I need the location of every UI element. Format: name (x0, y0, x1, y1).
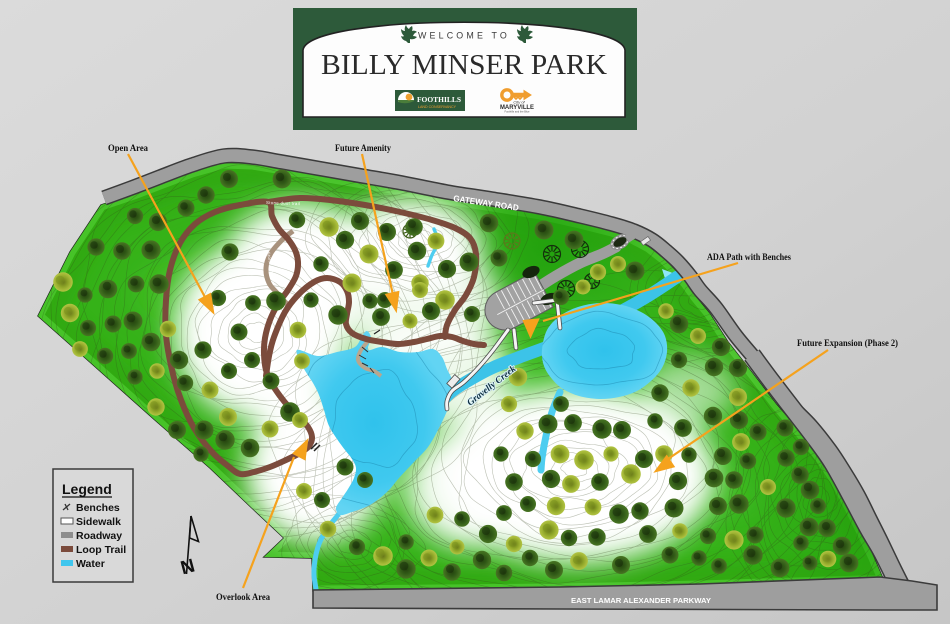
svg-text:Future Expansion (Phase 2): Future Expansion (Phase 2) (797, 338, 898, 349)
svg-text:Benches: Benches (76, 502, 120, 514)
svg-text:Sidewalk: Sidewalk (76, 516, 121, 528)
svg-text:EAST LAMAR ALEXANDER PARKWAY: EAST LAMAR ALEXANDER PARKWAY (571, 596, 711, 605)
svg-text:Open Area: Open Area (108, 144, 148, 154)
svg-text:Roadway: Roadway (76, 530, 122, 542)
svg-text:WELCOME TO: WELCOME TO (418, 31, 510, 41)
svg-text:Loop Trail: Loop Trail (76, 544, 126, 556)
svg-text:Foothills and the Blue: Foothills and the Blue (505, 110, 531, 114)
svg-text:FOOTHILLS: FOOTHILLS (417, 95, 461, 104)
svg-text:Legend: Legend (62, 481, 112, 497)
svg-text:Overlook Area: Overlook Area (216, 593, 270, 603)
svg-text:Water: Water (76, 558, 105, 570)
svg-text:Future Amenity: Future Amenity (335, 144, 391, 154)
svg-text:BILLY MINSER PARK: BILLY MINSER PARK (321, 50, 607, 81)
svg-text:ADA Path with Benches: ADA Path with Benches (707, 253, 791, 263)
svg-text:LAND CONSERVANCY: LAND CONSERVANCY (418, 105, 457, 109)
